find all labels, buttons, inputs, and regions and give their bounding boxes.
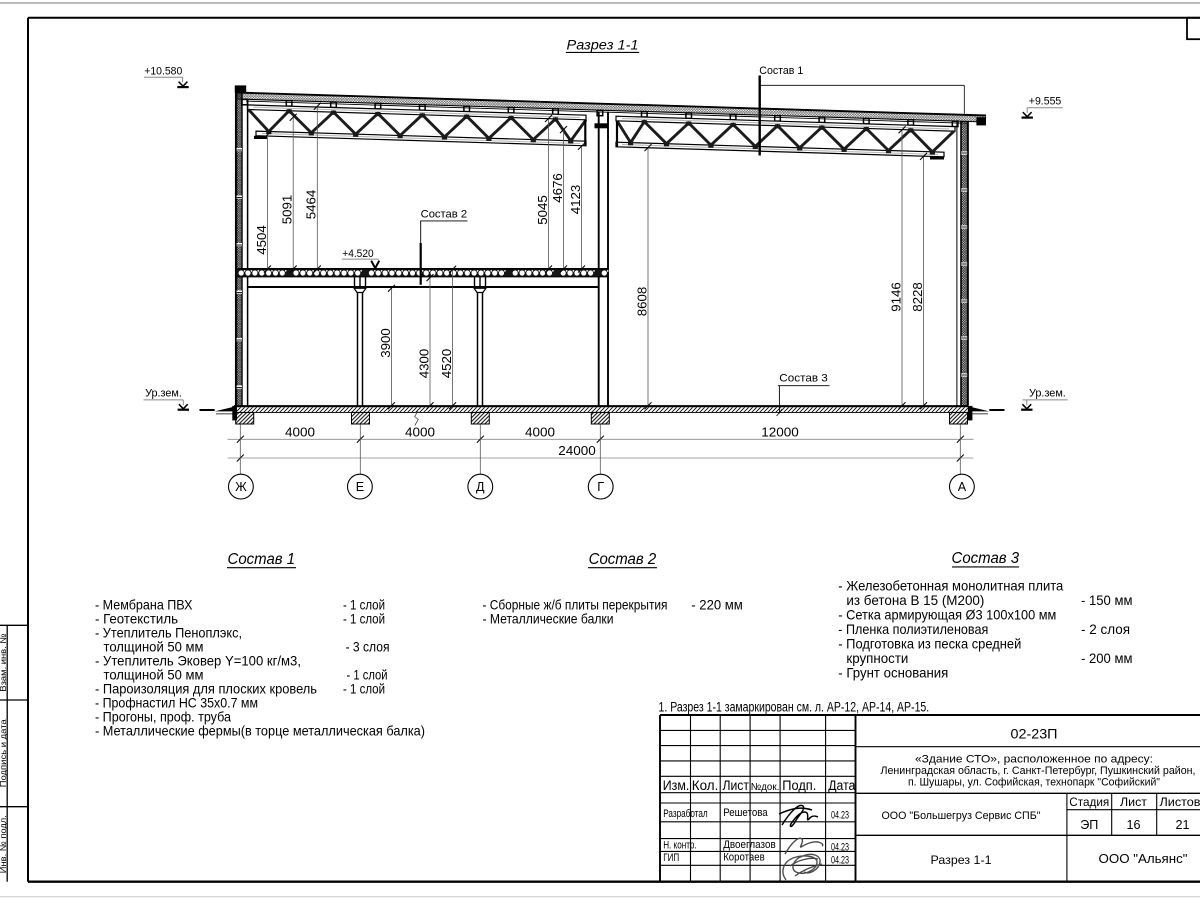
svg-text:+4.520: +4.520 bbox=[342, 248, 373, 260]
svg-text:Н. контр.: Н. контр. bbox=[663, 839, 697, 851]
svg-text:Дата: Дата bbox=[828, 778, 855, 793]
svg-text:толщиной 50 мм: толщиной 50 мм bbox=[104, 640, 204, 655]
svg-text:4000: 4000 bbox=[285, 424, 315, 439]
svg-text:Разрез 1-1: Разрез 1-1 bbox=[567, 38, 639, 54]
svg-text:8608: 8608 bbox=[634, 287, 649, 317]
svg-text:- Прогоны, проф. труба: - Прогоны, проф. труба bbox=[95, 710, 231, 725]
svg-text:5464: 5464 bbox=[304, 190, 319, 220]
svg-text:Кол.: Кол. bbox=[692, 778, 719, 793]
svg-text:4504: 4504 bbox=[254, 225, 269, 255]
svg-text:Разрез 1-1: Разрез 1-1 bbox=[931, 853, 992, 867]
svg-text:04.23: 04.23 bbox=[831, 854, 849, 866]
svg-text:5045: 5045 bbox=[535, 195, 550, 225]
svg-text:- Подготовка из песка средней: - Подготовка из песка средней bbox=[838, 637, 1021, 652]
svg-text:- Утеплитель Пеноплэкс,: - Утеплитель Пеноплэкс, bbox=[95, 626, 242, 641]
svg-text:ГИП: ГИП bbox=[663, 852, 679, 864]
svg-text:Коротаев: Коротаев bbox=[723, 852, 765, 864]
svg-text:02-23П: 02-23П bbox=[1011, 727, 1058, 742]
svg-text:А: А bbox=[958, 480, 967, 494]
svg-text:№док.: №док. bbox=[751, 782, 780, 793]
svg-text:- Металлические фермы(в торце: - Металлические фермы(в торце металличес… bbox=[95, 724, 425, 739]
svg-text:- Профнастил НС 35х0.7 мм: - Профнастил НС 35х0.7 мм bbox=[95, 696, 258, 711]
svg-text:толщиной 50 мм: толщиной 50 мм bbox=[104, 668, 204, 683]
svg-text:Ленинградская область, г. Санк: Ленинградская область, г. Санкт-Петербур… bbox=[881, 765, 1196, 777]
svg-text:Д: Д bbox=[476, 480, 485, 494]
svg-text:Лист: Лист bbox=[1120, 795, 1148, 809]
svg-text:8228: 8228 bbox=[910, 282, 925, 312]
svg-text:4123: 4123 bbox=[568, 185, 583, 215]
svg-text:- 220 мм: - 220 мм bbox=[691, 598, 743, 613]
svg-text:из бетона В 15 (М200): из бетона В 15 (М200) bbox=[846, 593, 984, 608]
svg-text:Двоеглазов: Двоеглазов bbox=[723, 839, 776, 851]
svg-text:4300: 4300 bbox=[416, 349, 431, 379]
svg-text:16: 16 bbox=[1126, 818, 1140, 832]
svg-text:3900: 3900 bbox=[378, 328, 393, 358]
svg-text:- Металлические балки: - Металлические балки bbox=[483, 612, 614, 627]
svg-text:Подпись и дата: Подпись и дата bbox=[0, 719, 8, 787]
svg-text:- Пленка полиэтиленовая: - Пленка полиэтиленовая bbox=[838, 622, 988, 637]
svg-text:24000: 24000 bbox=[558, 443, 596, 458]
svg-text:- 1 слой: - 1 слой bbox=[343, 612, 385, 627]
svg-text:4000: 4000 bbox=[405, 424, 435, 439]
svg-text:ЭП: ЭП bbox=[1080, 818, 1098, 832]
svg-text:Состав 2: Состав 2 bbox=[421, 209, 468, 221]
svg-text:- Грунт основания: - Грунт основания bbox=[838, 666, 948, 681]
svg-text:Ур.зем.: Ур.зем. bbox=[145, 387, 182, 399]
svg-text:- 1 слой: - 1 слой bbox=[347, 668, 388, 683]
svg-text:21: 21 bbox=[1175, 818, 1189, 832]
svg-text:12000: 12000 bbox=[761, 424, 799, 439]
svg-text:4520: 4520 bbox=[439, 349, 454, 379]
svg-text:1. Разрез 1-1 замаркирован см.: 1. Разрез 1-1 замаркирован см. л. АР-12,… bbox=[659, 699, 930, 714]
svg-text:+9.555: +9.555 bbox=[1029, 96, 1062, 108]
svg-text:+10.580: +10.580 bbox=[144, 65, 182, 77]
svg-text:Состав 1: Состав 1 bbox=[228, 551, 296, 568]
svg-text:Состав 2: Состав 2 bbox=[589, 551, 657, 568]
svg-text:ООО "Альянс": ООО "Альянс" bbox=[1099, 852, 1188, 866]
svg-text:9146: 9146 bbox=[888, 282, 903, 312]
svg-text:- 1 слой: - 1 слой bbox=[343, 682, 385, 697]
svg-text:5091: 5091 bbox=[280, 195, 295, 225]
svg-text:Состав 3: Состав 3 bbox=[952, 550, 1020, 567]
svg-text:- 3 слоя: - 3 слоя bbox=[346, 640, 390, 655]
svg-text:Подп.: Подп. bbox=[782, 778, 816, 793]
svg-text:04.23: 04.23 bbox=[831, 842, 849, 854]
svg-text:- Железобетонная монолитная п: - Железобетонная монолитная плита bbox=[838, 579, 1063, 594]
svg-text:Состав 3: Состав 3 bbox=[779, 373, 828, 385]
svg-text:Решетова: Решетова bbox=[723, 807, 768, 819]
svg-text:Взам. инв. №: Взам. инв. № bbox=[0, 634, 8, 692]
svg-text:- Пароизоляция для плоских кро: - Пароизоляция для плоских кровель bbox=[95, 682, 317, 697]
svg-text:Стадия: Стадия bbox=[1069, 795, 1109, 809]
svg-text:- 1 слой: - 1 слой bbox=[343, 598, 385, 613]
svg-text:- 200 мм: - 200 мм bbox=[1081, 651, 1133, 666]
svg-text:«Здание СТО», расположенное по: «Здание СТО», расположенное по адресу: bbox=[915, 753, 1153, 765]
svg-text:- Сборные ж/б плиты перекрытия: - Сборные ж/б плиты перекрытия bbox=[483, 598, 668, 613]
svg-text:крупности: крупности bbox=[846, 651, 908, 666]
svg-text:- 2 слоя: - 2 слоя bbox=[1081, 622, 1130, 637]
svg-text:Инв. № подл.: Инв. № подл. bbox=[0, 815, 8, 873]
svg-text:Листов: Листов bbox=[1160, 795, 1200, 809]
svg-text:ООО "Большегруз Сервис СПБ": ООО "Большегруз Сервис СПБ" bbox=[882, 810, 1041, 822]
svg-text:- Сетка армирующая Ø3 100х100: - Сетка армирующая Ø3 100х100 мм bbox=[838, 608, 1056, 623]
svg-text:4000: 4000 bbox=[525, 424, 555, 439]
svg-text:Разработал: Разработал bbox=[663, 808, 708, 820]
svg-text:- 150 мм: - 150 мм bbox=[1081, 593, 1133, 608]
svg-text:- Мембрана ПВХ: - Мембрана ПВХ bbox=[95, 598, 193, 613]
svg-text:Г: Г bbox=[597, 480, 604, 494]
svg-text:- Геотекстиль: - Геотекстиль bbox=[95, 612, 178, 627]
svg-text:04.23: 04.23 bbox=[831, 810, 849, 822]
svg-text:Изм.: Изм. bbox=[663, 778, 690, 793]
svg-text:4676: 4676 bbox=[550, 173, 565, 203]
svg-text:Е: Е bbox=[356, 480, 364, 494]
svg-text:Лист: Лист bbox=[723, 778, 750, 793]
svg-text:- Утеплитель Эковер Y=100 кг/м: - Утеплитель Эковер Y=100 кг/м3, bbox=[95, 654, 301, 669]
svg-text:Ж: Ж bbox=[235, 480, 247, 494]
svg-text:Состав 1: Состав 1 bbox=[759, 65, 803, 77]
svg-text:Ур.зем.: Ур.зем. bbox=[1029, 387, 1066, 399]
svg-text:п. Шушары, ул. Софийская, техн: п. Шушары, ул. Софийская, технопарк "Соф… bbox=[908, 776, 1160, 788]
